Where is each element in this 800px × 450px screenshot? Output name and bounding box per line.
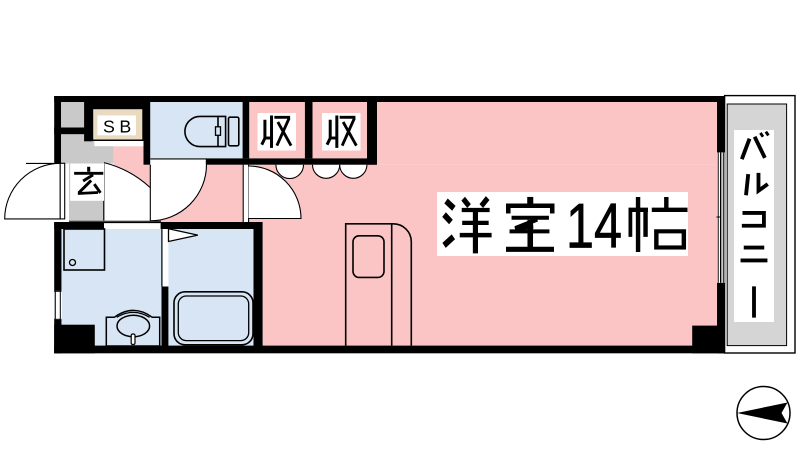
svg-text:SB: SB: [103, 116, 136, 136]
svg-text:14: 14: [566, 192, 622, 262]
